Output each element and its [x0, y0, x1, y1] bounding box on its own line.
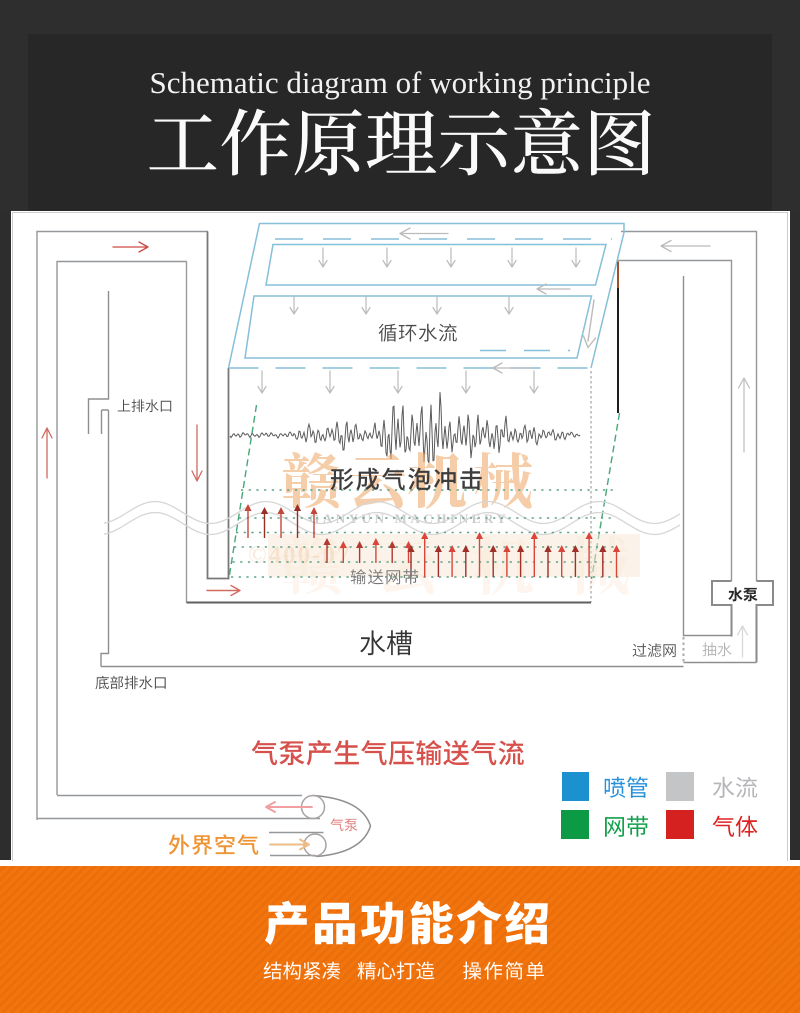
- svg-text:©400-07: ©400-07: [248, 542, 352, 569]
- svg-text:Schematic diagram of working p: Schematic diagram of working principle: [149, 65, 650, 100]
